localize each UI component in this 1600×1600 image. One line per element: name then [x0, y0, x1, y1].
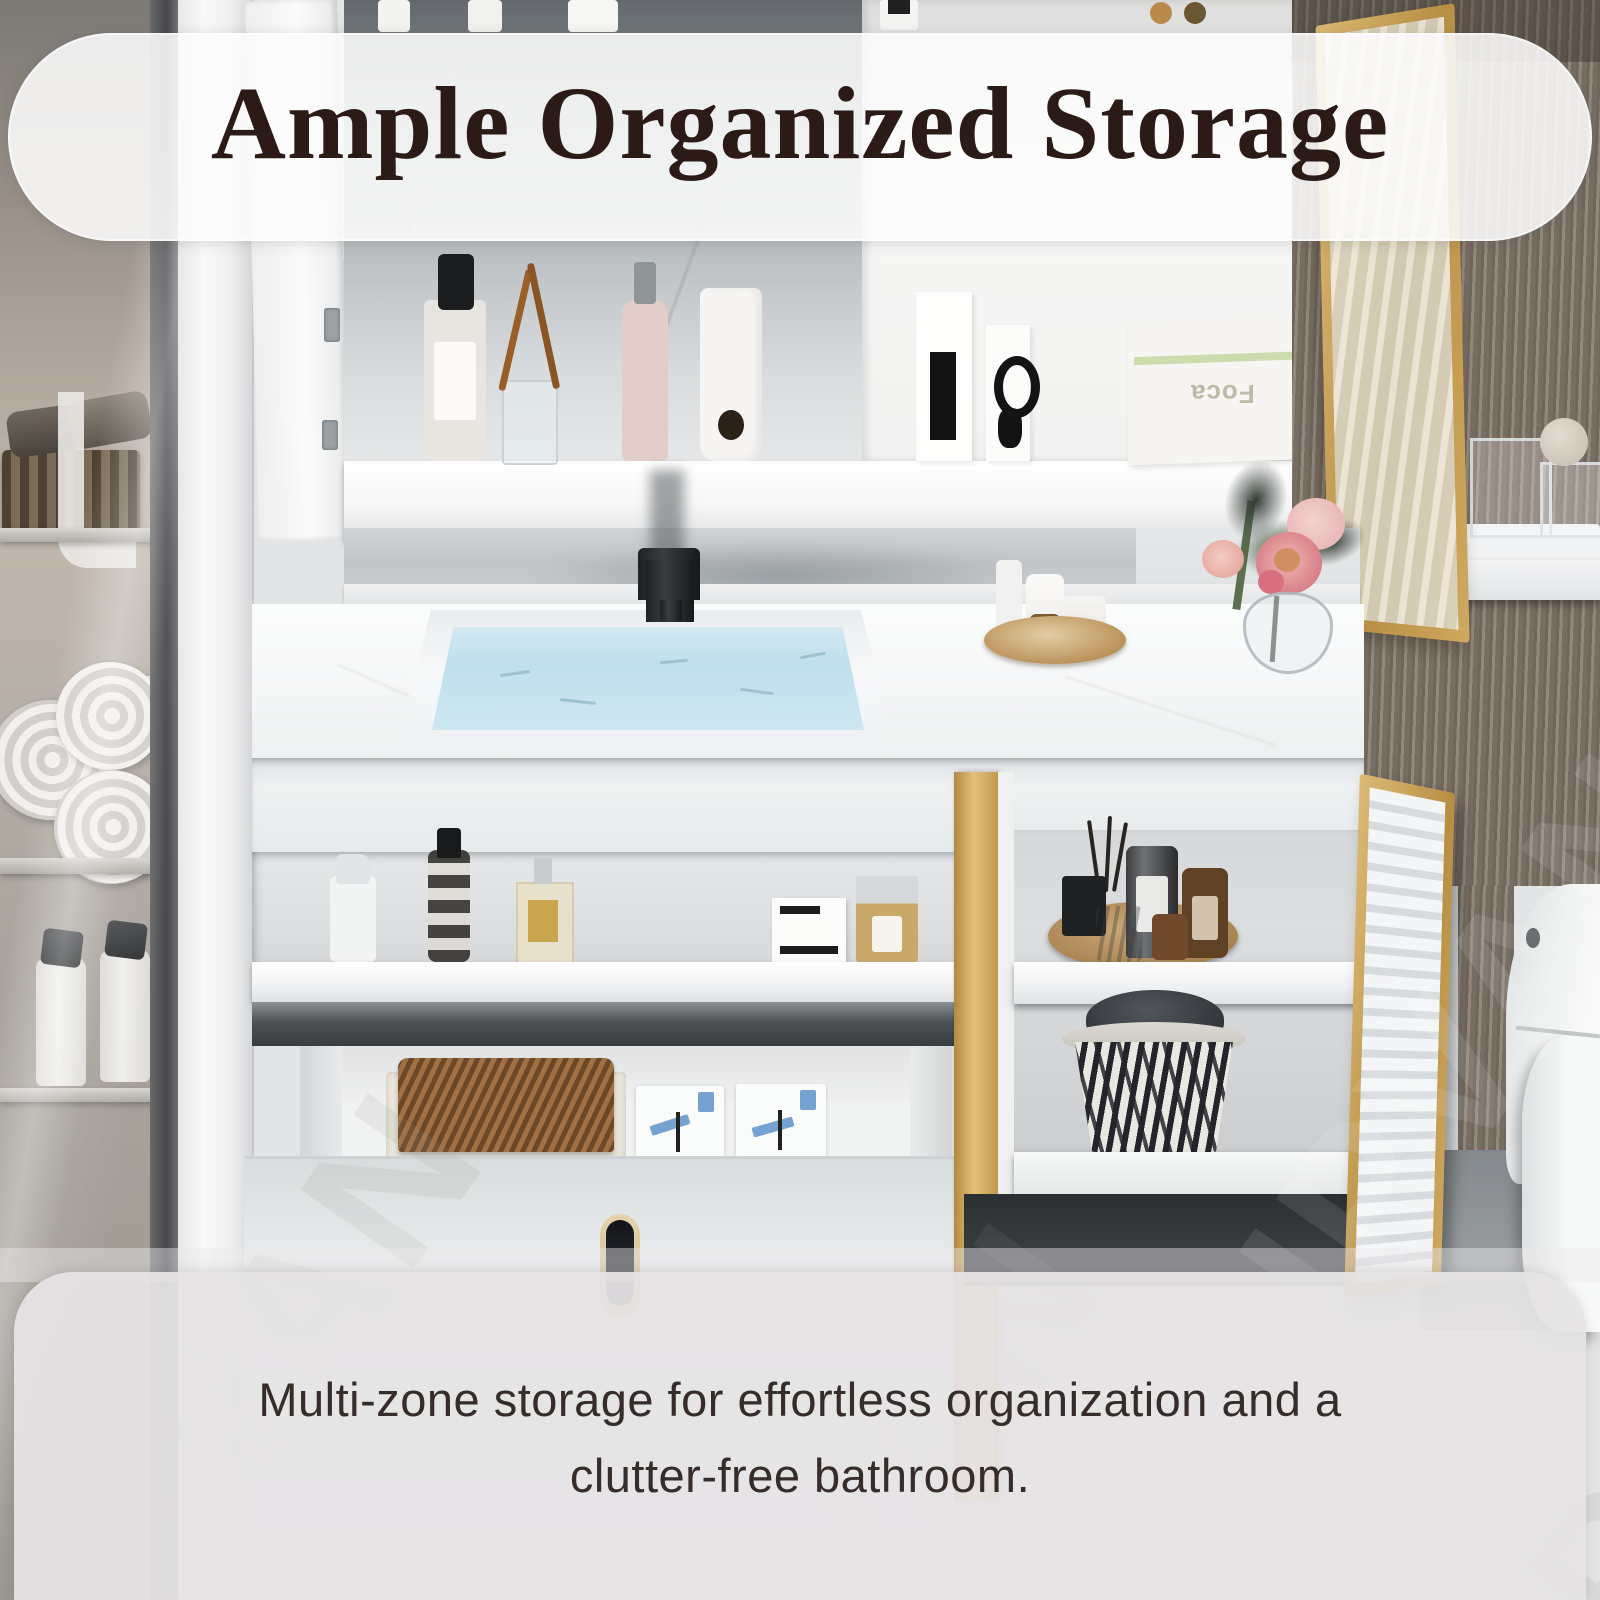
packet-slit — [778, 1110, 782, 1150]
packet-graphic — [751, 1116, 794, 1137]
top-shelf-bottle — [378, 0, 410, 32]
caption-panel — [14, 1272, 1586, 1600]
gold-tray — [984, 616, 1126, 664]
top-shelf-bottle — [468, 0, 502, 32]
rose-bud — [1258, 570, 1284, 594]
product-image: Foca — [0, 0, 1600, 1600]
tissue-box-label: Foca — [1190, 378, 1255, 409]
toiletry-bottle — [100, 950, 150, 1082]
bottle-cap — [40, 928, 84, 969]
drawer-gap-shadow — [252, 1002, 958, 1046]
pink-bottle — [622, 300, 668, 461]
packet-graphic — [698, 1092, 714, 1112]
caption-line-1: Multi-zone storage for effortless organi… — [0, 1372, 1600, 1427]
door-hinge — [322, 420, 338, 450]
tube-nozzle — [718, 410, 744, 440]
sink-water — [432, 627, 864, 730]
acrylic-box — [1540, 462, 1600, 538]
toiletry-bottle — [36, 958, 86, 1086]
striped-pump-bottle — [428, 850, 470, 962]
flower-ball — [1540, 418, 1588, 466]
towel-roll — [56, 662, 164, 770]
box-bar — [780, 906, 820, 914]
box-graphic — [930, 352, 956, 440]
bottle-cap — [888, 0, 910, 14]
headline-title: Ample Organized Storage — [0, 58, 1600, 190]
spray-bottle — [330, 876, 376, 962]
spray-trigger — [336, 854, 370, 884]
packet-graphic — [649, 1114, 690, 1136]
marble-jar — [1096, 906, 1142, 962]
gold-cap — [1150, 2, 1172, 24]
backsplash-baseboard — [344, 584, 1360, 606]
perfume-label — [528, 900, 558, 942]
faucet-spout — [660, 600, 682, 622]
open-shelf-board — [252, 962, 958, 1002]
drawer-side-wall — [910, 1046, 952, 1158]
gold-cap — [1184, 2, 1206, 24]
perfume-label — [872, 916, 902, 952]
pump-cap — [437, 828, 461, 858]
rose-center — [1274, 548, 1300, 572]
bottle-label — [1192, 896, 1218, 940]
bottle-label — [434, 342, 476, 420]
bottle-cap — [104, 920, 148, 961]
zebra-basket — [1068, 1042, 1240, 1152]
box-bar — [780, 946, 838, 954]
packet-graphic — [800, 1090, 816, 1110]
toothbrush-cup — [502, 380, 558, 465]
box-graphic — [994, 356, 1040, 418]
toiletry-packet — [636, 1086, 724, 1158]
door-hinge — [324, 308, 340, 342]
packet-slit — [676, 1112, 680, 1152]
top-shelf-bottle — [568, 0, 618, 32]
caption-line-2: clutter-free bathroom. — [0, 1448, 1600, 1503]
perfume-cap — [534, 858, 552, 884]
toiletry-packet — [736, 1084, 826, 1158]
box-graphic — [998, 408, 1022, 448]
black-pump-cap — [438, 254, 474, 310]
blush-bloom — [1202, 540, 1244, 578]
pump-top — [634, 262, 656, 304]
small-amber-jar — [1152, 914, 1188, 960]
